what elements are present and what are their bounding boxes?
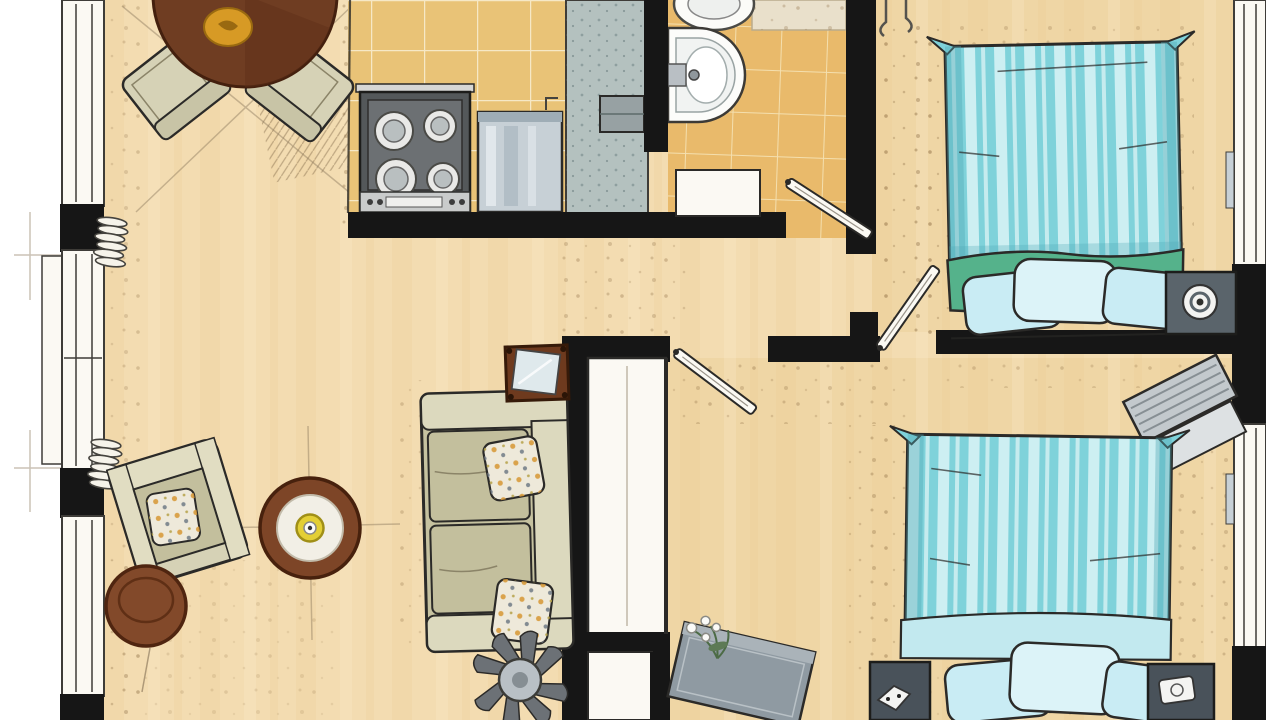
steel-counter-unit: [478, 98, 562, 212]
room-kitchen: [348, 0, 648, 214]
floor-plan: [0, 0, 1280, 720]
nightstand-bedroom-2-right: [1148, 664, 1214, 720]
bed-bedroom-1: [927, 31, 1201, 339]
bedside-lamp: [1158, 676, 1195, 704]
hall-closet: [562, 336, 670, 720]
bathroom-door-panel: [676, 170, 760, 216]
flower: [701, 633, 711, 643]
window-handle-1: [1226, 152, 1234, 208]
sink-faucet: [668, 64, 686, 86]
wall-stub: [850, 312, 878, 362]
window-right-1: [1234, 0, 1266, 266]
closet-panel-lower: [588, 652, 652, 720]
stove: [356, 84, 474, 212]
balcony-shutter: [42, 256, 62, 464]
window-left-1: [62, 0, 104, 206]
mirror-cabinet: [505, 345, 569, 401]
round-coffee-table: [260, 478, 360, 578]
nightstand-bedroom-1: [1166, 272, 1236, 334]
floor-plan-image: [0, 0, 1280, 720]
sofa-pillow: [482, 435, 546, 502]
wall-kitchen-south: [348, 212, 668, 238]
window-right-2: [1234, 424, 1266, 650]
sofa: [421, 390, 574, 652]
window-handle-2: [1226, 474, 1234, 524]
right-exterior-wall: [1226, 0, 1280, 720]
flower: [712, 623, 722, 633]
nightstand-bedroom-2-left: [870, 662, 930, 720]
wall-kitchen-bath: [644, 0, 668, 152]
bed1-pillow: [1013, 258, 1117, 323]
window-left-2: [62, 250, 104, 470]
armchair-pillow: [146, 488, 202, 547]
bed2-duvet: [905, 434, 1172, 634]
window-left-3: [62, 516, 104, 696]
